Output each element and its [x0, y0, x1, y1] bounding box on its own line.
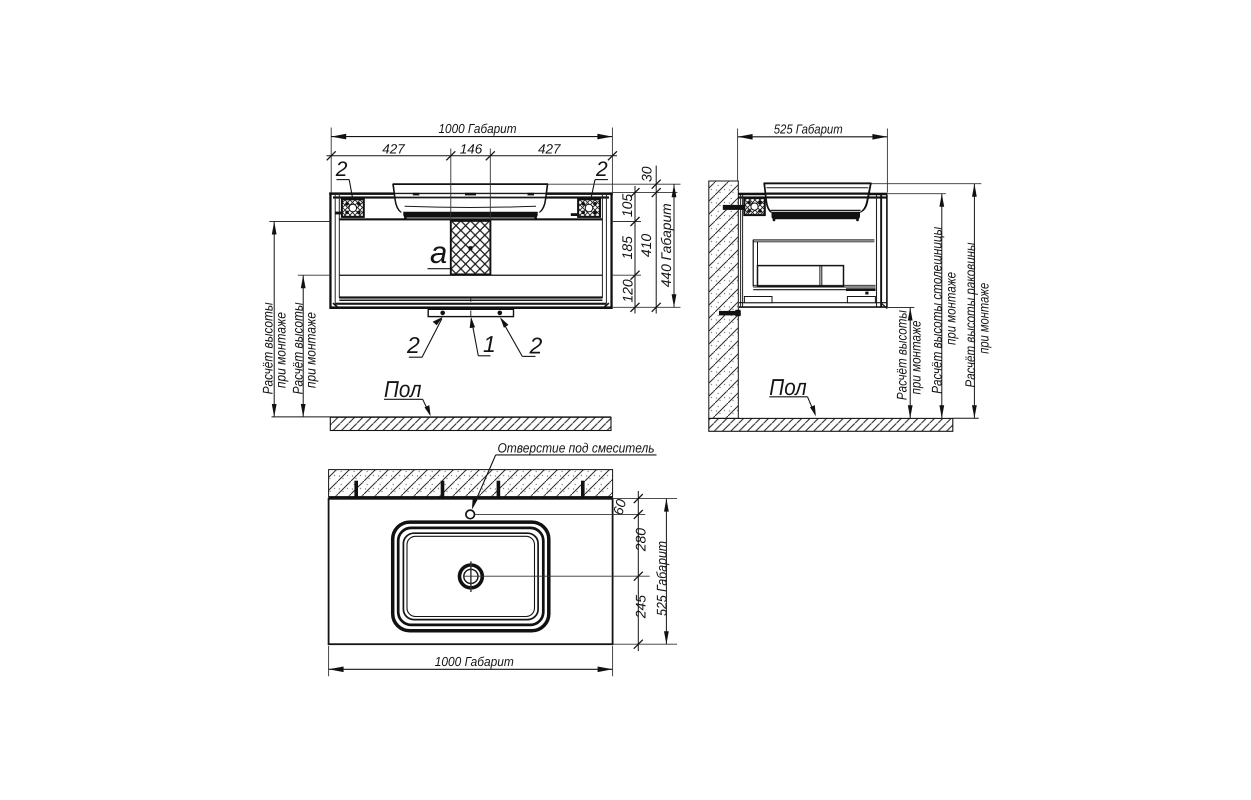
svg-text:1: 1 [483, 331, 496, 357]
svg-text:при монтаже: при монтаже [976, 283, 992, 354]
svg-text:427: 427 [382, 141, 405, 156]
svg-text:525 Габарит: 525 Габарит [774, 121, 843, 136]
svg-text:2: 2 [529, 332, 543, 358]
svg-text:a: a [430, 235, 447, 270]
svg-text:Пол: Пол [769, 374, 807, 400]
svg-text:Пол: Пол [384, 376, 422, 402]
svg-text:440 Габарит: 440 Габарит [658, 203, 674, 287]
svg-text:120: 120 [620, 279, 636, 303]
svg-text:410: 410 [638, 234, 654, 258]
svg-text:280: 280 [632, 528, 648, 553]
svg-text:при монтаже: при монтаже [943, 272, 959, 345]
svg-text:1000 Габарит: 1000 Габарит [439, 121, 517, 136]
svg-text:при монтаже: при монтаже [273, 312, 289, 388]
svg-text:при монтаже: при монтаже [908, 320, 924, 394]
svg-text:при монтаже: при монтаже [302, 312, 318, 388]
svg-text:427: 427 [538, 141, 561, 156]
svg-text:Отверстие под смеситель: Отверстие под смеситель [498, 440, 655, 455]
svg-text:2: 2 [406, 332, 420, 358]
svg-text:1000 Габарит: 1000 Габарит [435, 654, 514, 669]
svg-text:525 Габарит: 525 Габарит [653, 541, 669, 616]
svg-text:245: 245 [633, 595, 649, 620]
svg-text:105: 105 [619, 194, 635, 218]
svg-text:146: 146 [460, 141, 483, 156]
svg-text:2: 2 [335, 158, 348, 181]
svg-text:185: 185 [619, 236, 635, 260]
svg-text:2: 2 [595, 158, 608, 181]
svg-text:30: 30 [638, 166, 654, 182]
